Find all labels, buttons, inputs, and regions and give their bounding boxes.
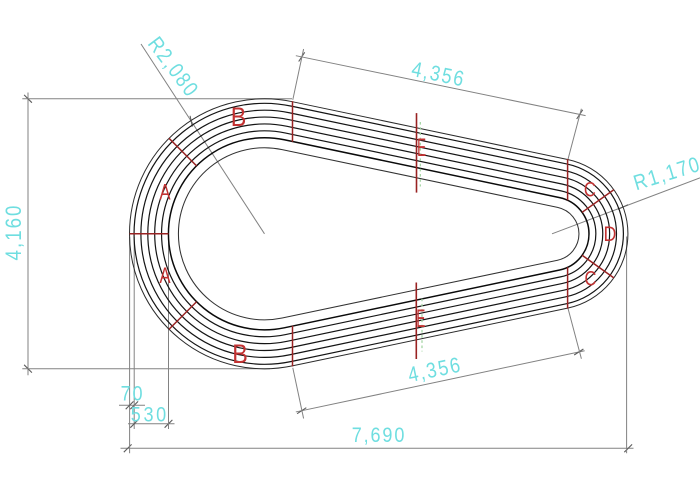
svg-text:E: E: [416, 306, 425, 333]
svg-text:70: 70: [121, 382, 145, 406]
svg-text:R1,170: R1,170: [631, 152, 700, 195]
svg-text:C: C: [585, 268, 597, 292]
svg-text:530: 530: [131, 403, 169, 427]
svg-text:A: A: [159, 264, 170, 289]
svg-text:R2,080: R2,080: [143, 33, 204, 103]
svg-text:A: A: [159, 180, 170, 205]
svg-text:4,356: 4,356: [406, 353, 464, 387]
svg-text:D: D: [604, 223, 617, 247]
svg-text:4,160: 4,160: [2, 204, 27, 261]
svg-text:E: E: [417, 135, 426, 162]
svg-text:B: B: [231, 103, 247, 133]
svg-text:B: B: [232, 339, 248, 369]
svg-text:4,356: 4,356: [409, 58, 467, 92]
svg-text:7,690: 7,690: [352, 423, 406, 447]
svg-text:C: C: [584, 178, 596, 202]
